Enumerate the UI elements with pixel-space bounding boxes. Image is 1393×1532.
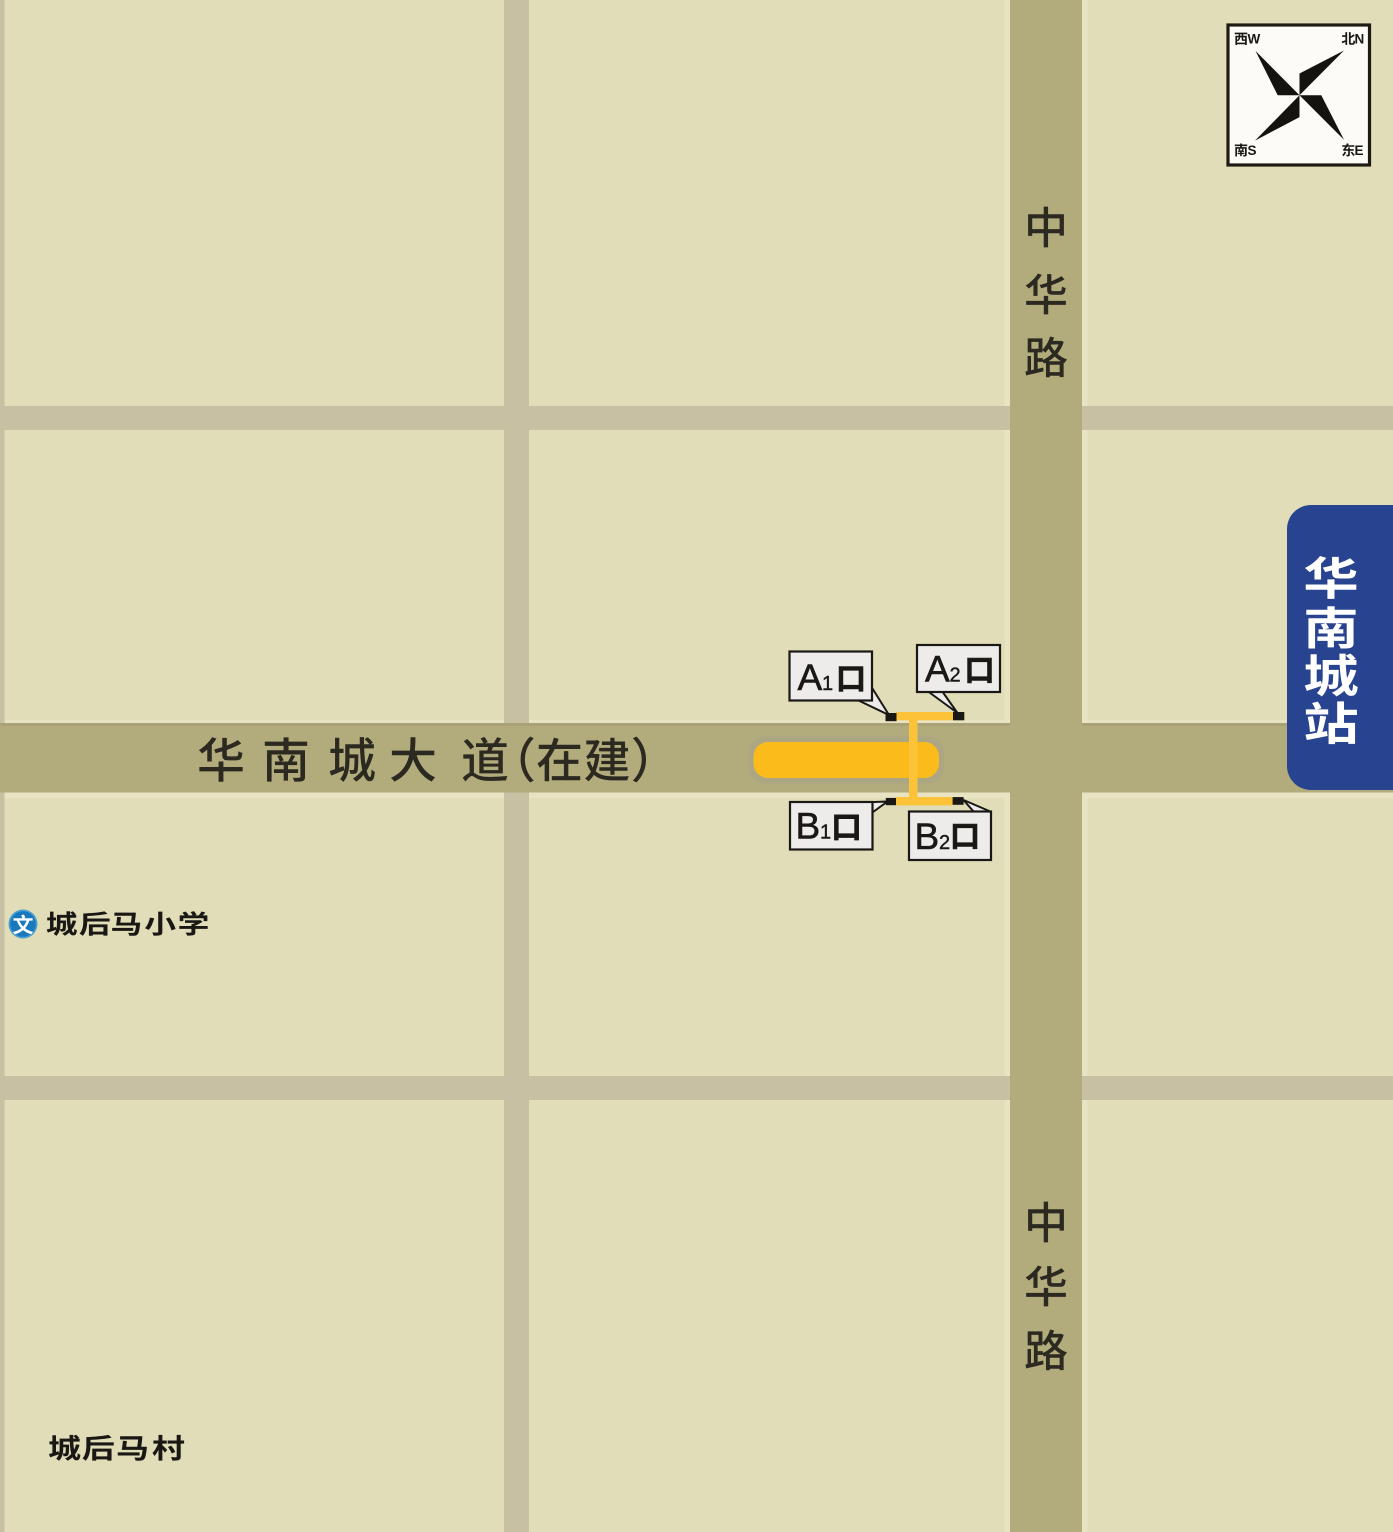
svg-text:N: N xyxy=(1355,32,1365,47)
svg-text:B: B xyxy=(915,816,940,857)
svg-text:E: E xyxy=(1355,143,1364,158)
svg-text:1: 1 xyxy=(820,822,831,844)
svg-text:W: W xyxy=(1248,32,1261,47)
svg-text:1: 1 xyxy=(822,673,833,695)
svg-text:2: 2 xyxy=(950,665,961,687)
svg-text:A: A xyxy=(925,649,950,690)
svg-text:B: B xyxy=(796,806,821,847)
svg-text:A: A xyxy=(798,657,823,698)
svg-text:S: S xyxy=(1248,143,1257,158)
svg-text:2: 2 xyxy=(939,832,950,854)
